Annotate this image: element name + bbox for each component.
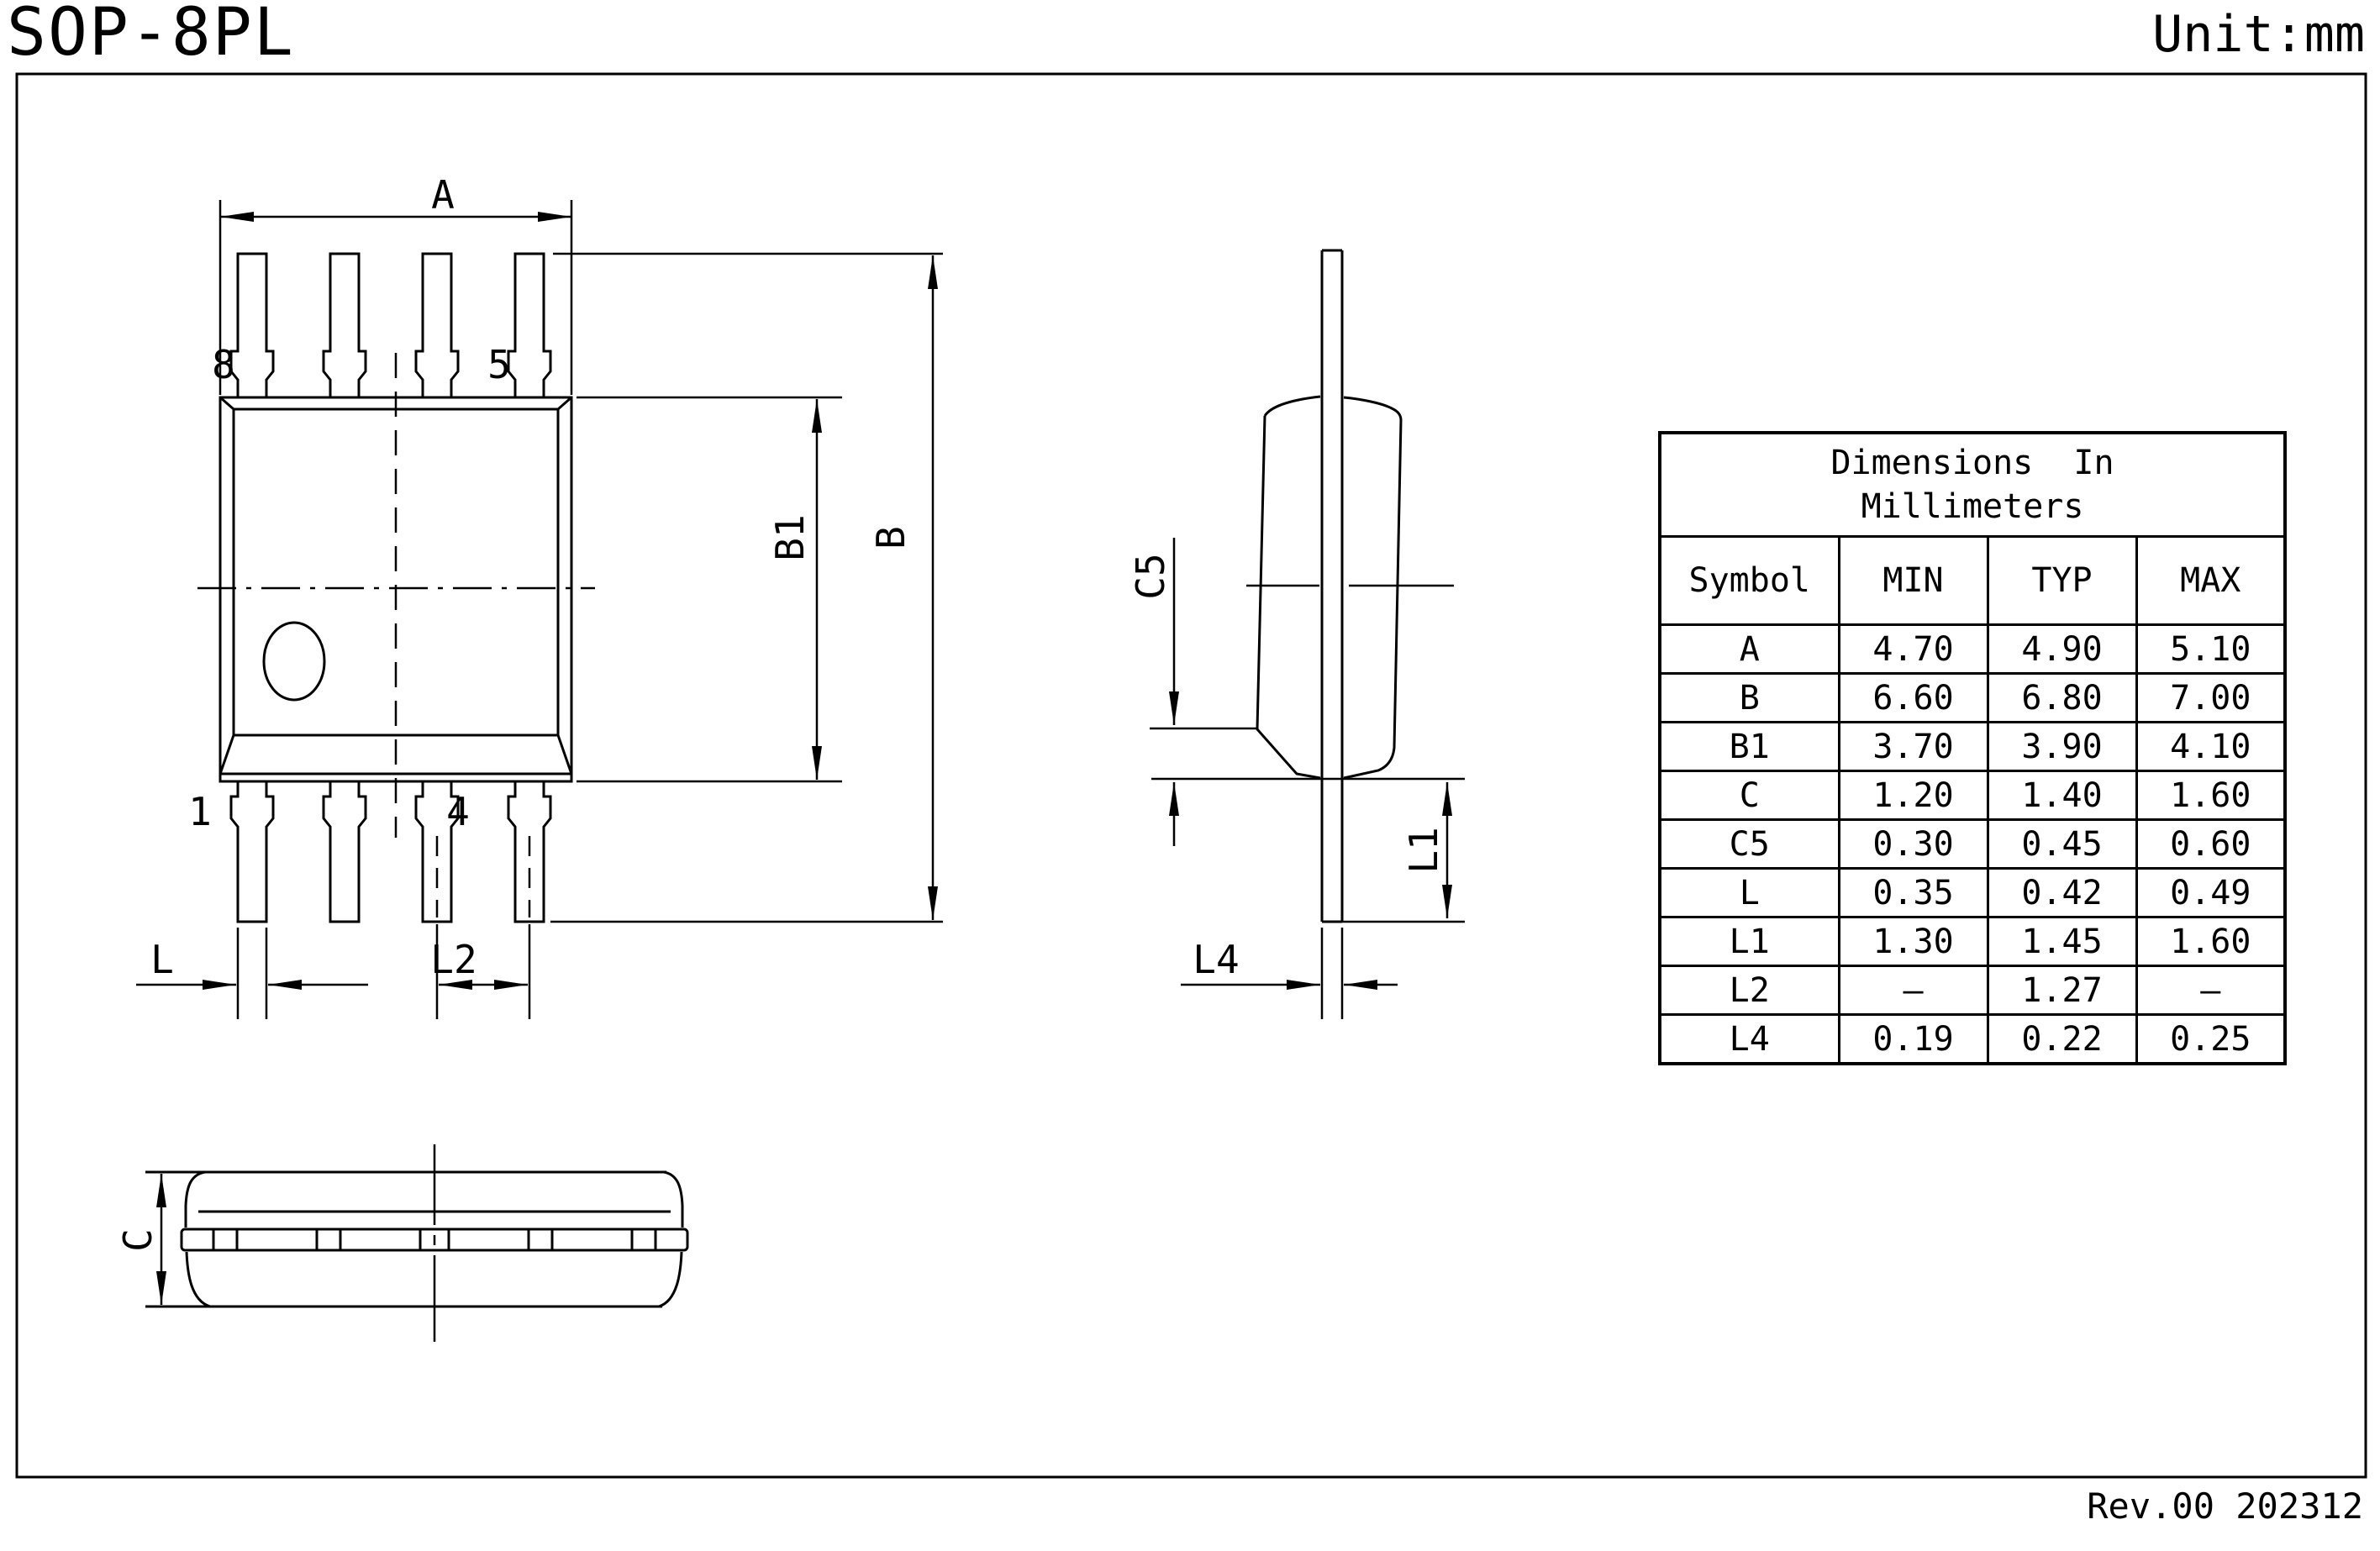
cell-typ: 4.90	[1988, 625, 2136, 674]
table-row: C5 0.30 0.45 0.60	[1660, 820, 2285, 869]
cell-typ: 1.45	[1988, 917, 2136, 966]
col-header-min: MIN	[1839, 537, 1988, 625]
cell-min: 6.60	[1839, 674, 1988, 723]
cell-min: 1.30	[1839, 917, 1988, 966]
dim-l2-label: L2	[430, 937, 477, 982]
cell-typ: 3.90	[1988, 723, 2136, 771]
table-caption-line1: Dimensions In	[1661, 441, 2283, 485]
dim-b1-label: B1	[767, 514, 813, 560]
cell-min: 4.70	[1839, 625, 1988, 674]
dimension-c5	[1150, 538, 1465, 846]
side-body-right	[1344, 420, 1401, 778]
cell-typ: 6.80	[1988, 674, 2136, 723]
cell-typ: 1.40	[1988, 771, 2136, 820]
cell-typ: 0.22	[1988, 1015, 2136, 1065]
cell-min: 0.30	[1839, 820, 1988, 869]
dimensions-table: Dimensions In Millimeters Symbol MIN TYP…	[1658, 431, 2287, 1065]
dim-l-label: L	[150, 937, 174, 982]
dim-a-label: A	[431, 172, 455, 218]
table-row: B 6.60 6.80 7.00	[1660, 674, 2285, 723]
top-view	[136, 200, 943, 1019]
dim-b-label: B	[868, 526, 914, 549]
cell-symbol: L4	[1660, 1015, 1839, 1065]
table-row: A 4.70 4.90 5.10	[1660, 625, 2285, 674]
pin1-indicator-circle	[264, 623, 324, 700]
table-caption-row: Dimensions In Millimeters	[1660, 433, 2285, 537]
cell-min: 0.35	[1839, 869, 1988, 917]
cell-max: 1.60	[2136, 917, 2285, 966]
table-row: L4 0.19 0.22 0.25	[1660, 1015, 2285, 1065]
lead-bottom-1	[231, 781, 273, 922]
cell-symbol: C5	[1660, 820, 1839, 869]
cell-min: 3.70	[1839, 723, 1988, 771]
table-row: L 0.35 0.42 0.49	[1660, 869, 2285, 917]
col-header-typ: TYP	[1988, 537, 2136, 625]
cell-max: 0.49	[2136, 869, 2285, 917]
pin-5-label: 5	[487, 342, 511, 387]
cell-min: 1.20	[1839, 771, 1988, 820]
cell-symbol: L	[1660, 869, 1839, 917]
table-header-row: Symbol MIN TYP MAX	[1660, 537, 2285, 625]
cell-max: 7.00	[2136, 674, 2285, 723]
cell-symbol: A	[1660, 625, 1839, 674]
table-caption-line2: Millimeters	[1661, 485, 2283, 528]
cell-typ: 0.42	[1988, 869, 2136, 917]
cell-max: 0.25	[2136, 1015, 2285, 1065]
lead-top-4	[508, 254, 550, 397]
cell-min: –	[1839, 966, 1988, 1015]
cell-symbol: L1	[1660, 917, 1839, 966]
side-body-left	[1257, 416, 1320, 778]
dim-c-label: C	[115, 1228, 161, 1252]
cell-symbol: B1	[1660, 723, 1839, 771]
table-row: B1 3.70 3.90 4.10	[1660, 723, 2285, 771]
col-header-max: MAX	[2136, 537, 2285, 625]
col-header-symbol: Symbol	[1660, 537, 1839, 625]
cell-symbol: L2	[1660, 966, 1839, 1015]
dim-l1-label: L1	[1401, 827, 1446, 873]
dimension-b	[550, 254, 943, 922]
cell-max: 1.60	[2136, 771, 2285, 820]
cell-typ: 1.27	[1988, 966, 2136, 1015]
pin-4-label: 4	[446, 789, 470, 834]
cell-max: 0.60	[2136, 820, 2285, 869]
side-body-top-right	[1344, 397, 1401, 420]
table-row: C 1.20 1.40 1.60	[1660, 771, 2285, 820]
cell-symbol: B	[1660, 674, 1839, 723]
pin-1-label: 1	[188, 789, 212, 834]
side-view	[1150, 250, 1465, 1019]
pin-8-label: 8	[212, 342, 235, 387]
front-body-right-end	[664, 1172, 682, 1228]
lead-top-2	[324, 254, 366, 397]
table-row: L1 1.30 1.45 1.60	[1660, 917, 2285, 966]
table-caption: Dimensions In Millimeters	[1660, 433, 2285, 537]
lead-bottom-2	[324, 781, 366, 922]
cell-symbol: C	[1660, 771, 1839, 820]
front-view	[145, 1144, 687, 1342]
lead-top-1	[231, 254, 273, 397]
front-body-left-end	[186, 1172, 205, 1228]
cell-max: 5.10	[2136, 625, 2285, 674]
cell-max: –	[2136, 966, 2285, 1015]
table-row: L2 – 1.27 –	[1660, 966, 2285, 1015]
cell-max: 4.10	[2136, 723, 2285, 771]
side-body-top-left	[1265, 397, 1320, 416]
dimension-b1	[577, 397, 842, 781]
datasheet-page: SOP-8PL Unit:mm Rev.00 202312	[0, 0, 2380, 1551]
cell-typ: 0.45	[1988, 820, 2136, 869]
dim-l4-label: L4	[1193, 937, 1239, 982]
cell-min: 0.19	[1839, 1015, 1988, 1065]
lead-top-3	[416, 254, 458, 397]
dim-c5-label: C5	[1128, 553, 1173, 599]
